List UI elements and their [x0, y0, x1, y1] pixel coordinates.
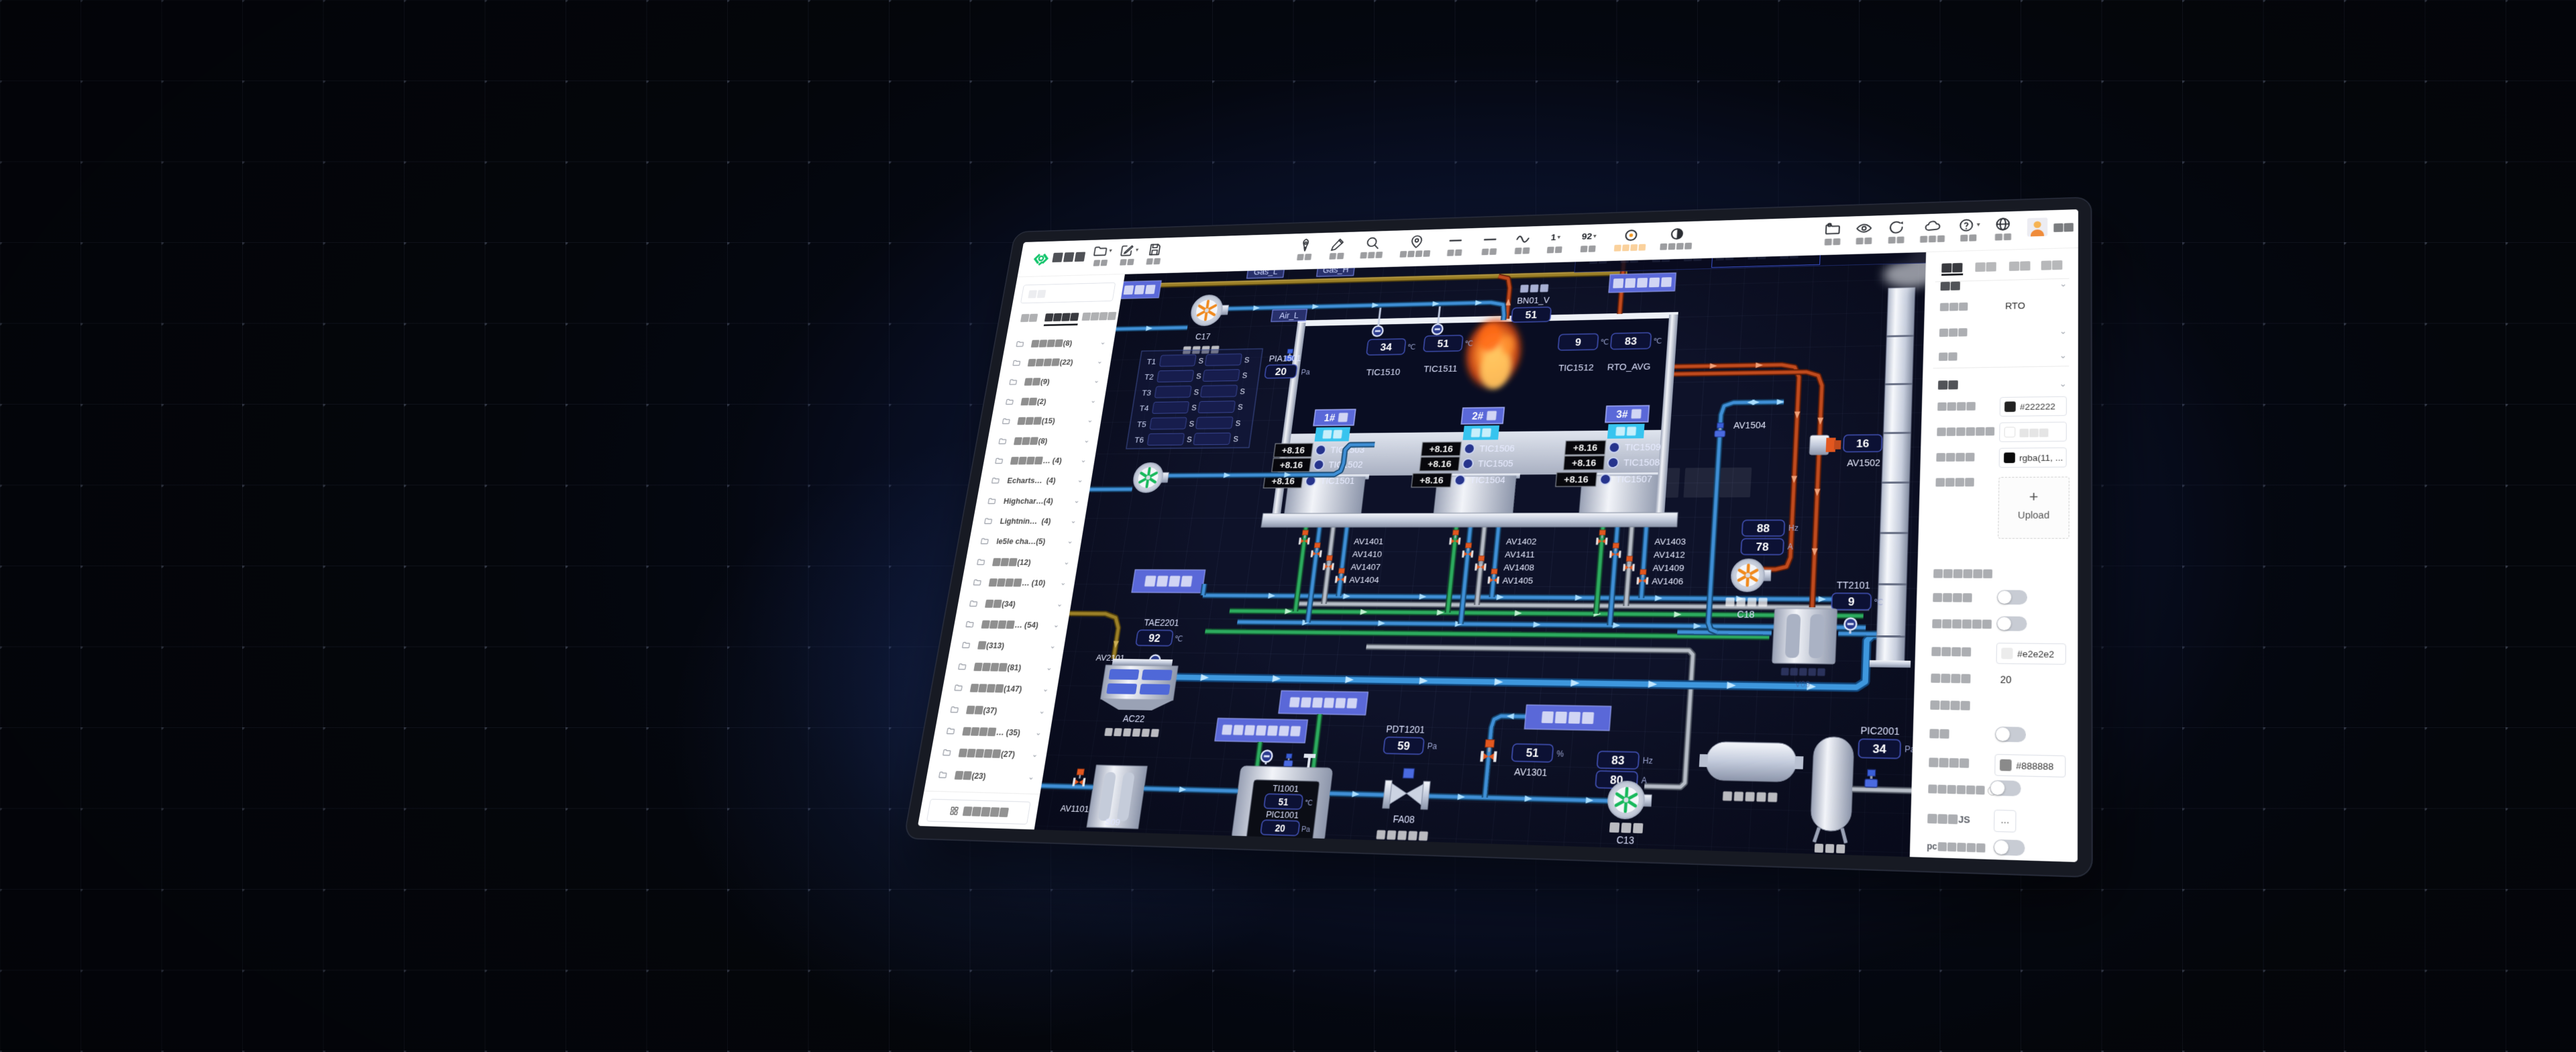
svg-text:AV1301: AV1301: [1514, 768, 1548, 779]
svg-text:AV1502: AV1502: [1847, 458, 1880, 468]
svg-text:T2: T2: [1144, 373, 1155, 382]
svg-text:PIA1501: PIA1501: [1269, 354, 1301, 364]
svg-text:℃: ℃: [1174, 635, 1183, 644]
svg-text:BN01_V: BN01_V: [1517, 296, 1550, 306]
svg-text:AV1408: AV1408: [1503, 563, 1535, 573]
svg-text:T5: T5: [1136, 420, 1147, 429]
svg-text:20: 20: [1275, 366, 1287, 377]
svg-text:78: 78: [1756, 541, 1770, 554]
svg-text:20: 20: [1274, 824, 1285, 835]
svg-text:S09: S09: [1104, 817, 1121, 828]
svg-text:TIC1511: TIC1511: [1423, 364, 1458, 374]
svg-text:℃: ℃: [1600, 338, 1609, 347]
svg-text:TIC1509: TIC1509: [1624, 443, 1661, 453]
svg-text:AV1412: AV1412: [1654, 550, 1686, 560]
svg-text:℃: ℃: [1407, 344, 1416, 352]
svg-text:Air_L: Air_L: [1279, 311, 1299, 321]
svg-text:Pa: Pa: [1427, 742, 1438, 752]
svg-text:51: 51: [1277, 798, 1289, 808]
svg-text:T4: T4: [1139, 405, 1150, 414]
svg-text:9: 9: [1847, 595, 1855, 608]
svg-text:TT2101: TT2101: [1836, 581, 1870, 592]
svg-text:+8.16: +8.16: [1429, 443, 1454, 455]
svg-text:AV1406: AV1406: [1652, 576, 1684, 586]
svg-text:83: 83: [1624, 335, 1637, 348]
svg-text:TIC1501: TIC1501: [1320, 476, 1355, 486]
svg-text:℃: ℃: [1653, 337, 1662, 346]
svg-text:+8.16: +8.16: [1571, 458, 1597, 469]
svg-text:TI1001: TI1001: [1272, 784, 1299, 794]
svg-text:+8.16: +8.16: [1427, 458, 1452, 470]
svg-text:AC22: AC22: [1122, 714, 1145, 725]
svg-text:AV1409: AV1409: [1652, 564, 1684, 574]
svg-text:+8.16: +8.16: [1564, 474, 1589, 485]
svg-text:34: 34: [1380, 341, 1393, 353]
svg-text:51: 51: [1437, 337, 1450, 349]
svg-text:3#: 3#: [1616, 409, 1628, 421]
svg-text:TIC1504: TIC1504: [1470, 476, 1507, 486]
svg-text:TIC1508: TIC1508: [1623, 458, 1660, 468]
svg-text:RTO_AVG: RTO_AVG: [1607, 362, 1651, 372]
svg-text:Pa: Pa: [1301, 825, 1311, 834]
svg-text:AV1403: AV1403: [1654, 537, 1686, 547]
svg-text:16: 16: [1856, 437, 1870, 450]
svg-text:Hz: Hz: [1642, 756, 1653, 766]
svg-text:PIC1001: PIC1001: [1265, 810, 1299, 821]
svg-text:TIC1505: TIC1505: [1477, 460, 1513, 470]
svg-text:1#: 1#: [1324, 413, 1336, 423]
svg-text:AV1504: AV1504: [1733, 421, 1766, 431]
svg-text:AV1401: AV1401: [1353, 537, 1384, 546]
svg-text:T6: T6: [1134, 436, 1144, 445]
svg-text:FA08: FA08: [1393, 814, 1415, 826]
svg-text:C18: C18: [1737, 610, 1755, 621]
svg-text:51: 51: [1525, 747, 1540, 760]
svg-text:+8.16: +8.16: [1281, 445, 1306, 456]
svg-text:2#: 2#: [1472, 411, 1484, 422]
svg-text:PDT1201: PDT1201: [1386, 725, 1426, 736]
svg-text:92: 92: [1148, 632, 1161, 644]
svg-text:34: 34: [1872, 742, 1887, 756]
svg-text:Hz: Hz: [1788, 524, 1799, 533]
svg-text:PIC2001: PIC2001: [1860, 726, 1900, 737]
svg-text:T3: T3: [1141, 388, 1152, 398]
svg-text:C13: C13: [1616, 835, 1635, 847]
svg-text:51: 51: [1525, 309, 1538, 321]
svg-text:AV1402: AV1402: [1505, 537, 1537, 547]
svg-text:AV1404: AV1404: [1349, 576, 1380, 586]
svg-text:TIC1506: TIC1506: [1479, 444, 1515, 454]
svg-text:LEL1001: LEL1001: [1262, 837, 1297, 847]
svg-text:+8.16: +8.16: [1419, 475, 1444, 486]
svg-text:TAE2201: TAE2201: [1143, 619, 1179, 629]
svg-text:83: 83: [1611, 753, 1625, 767]
svg-text:%: %: [1556, 749, 1565, 759]
svg-text:℃: ℃: [1304, 798, 1313, 807]
svg-text:℃: ℃: [1464, 339, 1474, 348]
svg-text:9: 9: [1574, 336, 1581, 348]
svg-text:AV1101: AV1101: [1060, 804, 1090, 815]
svg-text:Pa: Pa: [1301, 368, 1311, 377]
svg-text:+8.16: +8.16: [1279, 460, 1304, 471]
svg-text:TIC1512: TIC1512: [1558, 364, 1594, 374]
svg-text:88: 88: [1756, 522, 1770, 535]
svg-text:AV1407: AV1407: [1350, 562, 1381, 572]
svg-text:T1: T1: [1146, 358, 1157, 367]
svg-text:TIC1510: TIC1510: [1366, 368, 1401, 378]
svg-text:59: 59: [1397, 739, 1410, 753]
svg-text:TIC1507: TIC1507: [1615, 475, 1652, 485]
svg-text:AV1410: AV1410: [1352, 549, 1383, 560]
svg-text:+8.16: +8.16: [1572, 442, 1598, 454]
svg-text:C17: C17: [1195, 333, 1211, 342]
svg-text:V09: V09: [1794, 680, 1810, 690]
svg-text:℃: ℃: [1874, 598, 1884, 607]
svg-text:AV1405: AV1405: [1502, 576, 1534, 586]
svg-text:AV1411: AV1411: [1505, 550, 1536, 560]
